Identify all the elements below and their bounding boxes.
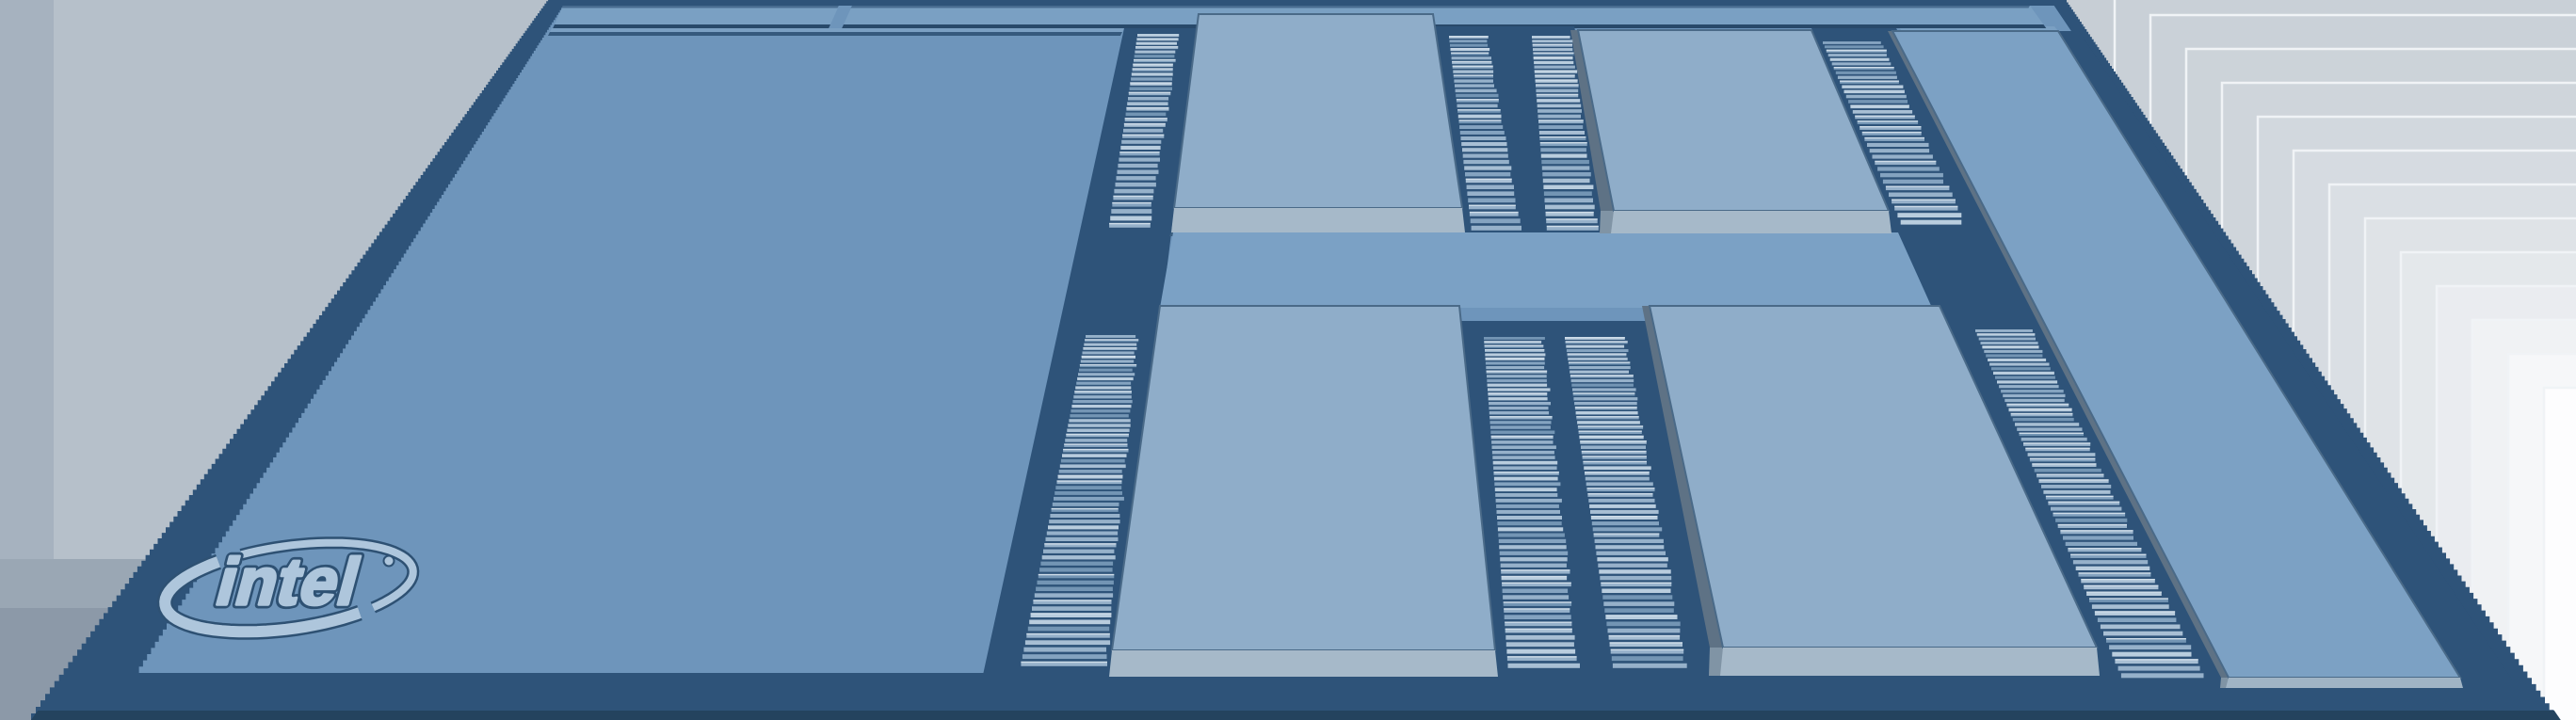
svg-text:intel: intel: [209, 546, 369, 619]
